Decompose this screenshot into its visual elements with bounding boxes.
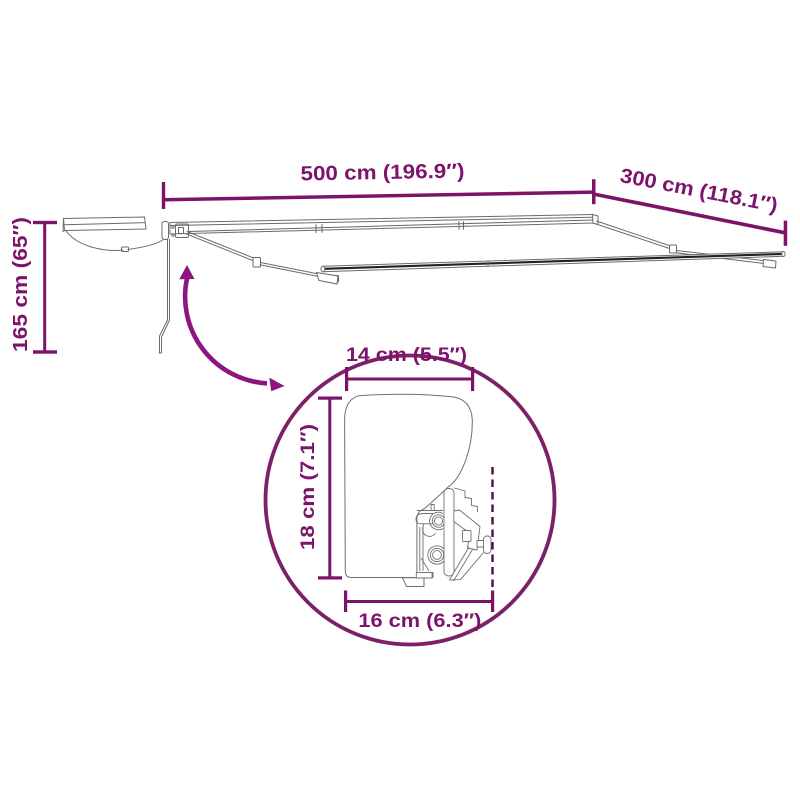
svg-text:16 cm (6.3″): 16 cm (6.3″) xyxy=(358,610,481,632)
svg-text:18 cm (7.1″): 18 cm (7.1″) xyxy=(297,424,319,550)
svg-text:500 cm (196.9″): 500 cm (196.9″) xyxy=(300,161,464,186)
svg-text:165 cm (65″): 165 cm (65″) xyxy=(10,217,32,352)
svg-text:14 cm (5.5″): 14 cm (5.5″) xyxy=(346,344,467,366)
